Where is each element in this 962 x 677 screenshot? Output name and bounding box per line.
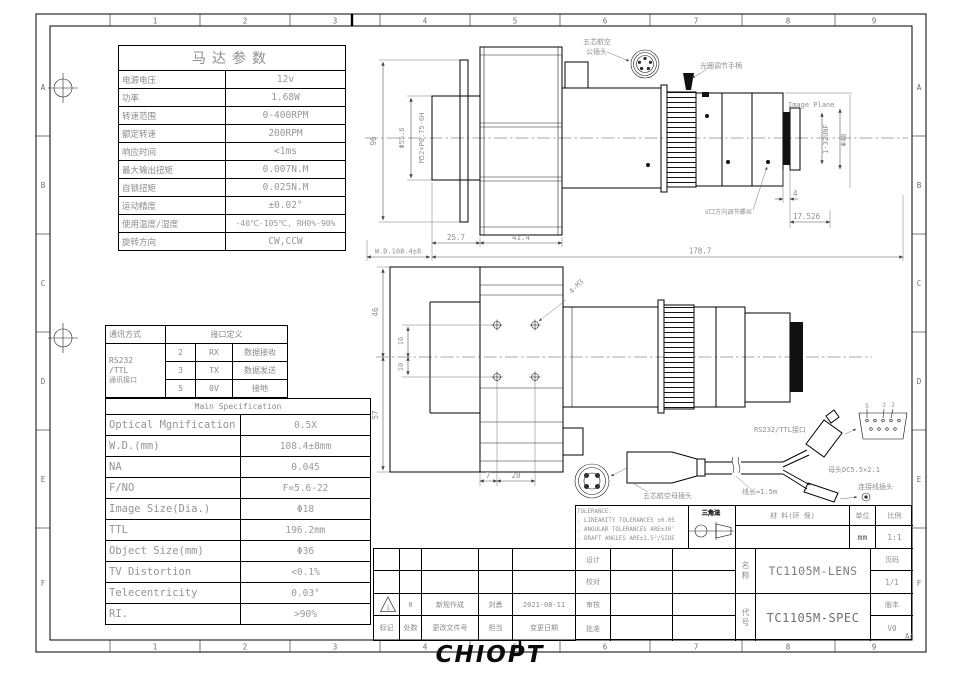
review-label: 审核 <box>576 594 611 616</box>
drawing-page: 1 2 3 4 5 6 7 8 9 1 2 3 4 5 6 7 8 9 A B … <box>0 0 962 677</box>
motor-row-value: -40℃-105℃, RH0%-90% <box>226 215 346 233</box>
table-row: 功率1.68W <box>119 89 346 107</box>
revision-header-mark: 标记 <box>374 616 400 641</box>
rs232-plug-body <box>806 420 842 457</box>
projection-symbol-cell <box>689 506 736 549</box>
table-row: 马达参数 <box>119 46 346 71</box>
table-row: NA0.045 <box>106 457 371 478</box>
revision-mark-cell <box>374 594 400 616</box>
focus-knurled-ring <box>667 92 696 187</box>
motor-row-value: CW,CCW <box>226 233 346 251</box>
label-cable-length: 线长≈1.5m <box>742 487 777 496</box>
motor-row-label: 最大输出扭矩 <box>119 161 226 179</box>
db9-connector <box>859 409 907 439</box>
zone-row-label: D <box>917 377 922 386</box>
table-row: TV Distortion<0.1% <box>106 562 371 583</box>
main-specification-table: Main Specification Optical Mgnification0… <box>105 398 371 625</box>
motor-row-label: 电源电压 <box>119 71 226 89</box>
proof-label: 校对 <box>576 571 611 594</box>
aviation-plug-block <box>565 62 588 88</box>
approve-value <box>611 616 673 641</box>
spec-row-label: TV Distortion <box>106 562 241 583</box>
revision-date: 2021-08-11 <box>513 594 576 616</box>
table-row: Optical Mgnification0.5X <box>106 415 371 436</box>
table-row: 最大输出扭矩0.007N.M <box>119 161 346 179</box>
spec-row-label: Optical Mgnification <box>106 415 241 436</box>
revision-header-count: 处数 <box>400 616 422 641</box>
zone-col-label: 9 <box>872 643 877 652</box>
zone-col-label: 7 <box>694 17 699 26</box>
revision-header-date: 变更日期 <box>513 616 576 641</box>
approve-label: 批准 <box>576 616 611 641</box>
table-row: 标记 处数 更改文件号 担当 变更日期 <box>374 616 576 641</box>
motor-row-value: 0.007N.M <box>226 161 346 179</box>
comm-pin: 2 <box>166 344 196 362</box>
revision-count: 0 <box>400 594 422 616</box>
scale-label: 比例 <box>876 506 913 526</box>
label-five-pin-male-plug-line2: 公插头 <box>586 47 607 56</box>
motor-parameter-table: 马达参数 电源电压12v 功率1.68W 转速范围0-400RPM 额定转速20… <box>118 45 346 251</box>
zone-col-label: 1 <box>153 17 158 26</box>
spec-row-value: <0.1% <box>241 562 371 583</box>
page-value: 1/1 <box>871 571 913 594</box>
db9-pin-5: 5 <box>865 403 869 410</box>
motor-row-label: 自锁扭矩 <box>119 179 226 197</box>
spec-row-label: F/NO <box>106 478 241 499</box>
table-row: 通讯方式 接口定义 <box>106 326 288 344</box>
table-row: F/NOF=5.6-22 <box>106 478 371 499</box>
revision-header-resp: 担当 <box>479 616 513 641</box>
db9-pin-2: 2 <box>891 402 895 409</box>
aperture-handle <box>683 73 694 90</box>
table-row: 使用温度/湿度-40℃-105℃, RH0%-90% <box>119 215 346 233</box>
aviation-plug-body <box>627 452 697 483</box>
motor-row-label: 转速范围 <box>119 107 226 125</box>
proof-date <box>673 571 736 594</box>
comm-method-line: /TTL <box>109 366 162 376</box>
spec-row-value: 0.5X <box>241 415 371 436</box>
zone-row-label: F <box>917 579 922 588</box>
zone-col-label: 5 <box>513 17 518 26</box>
zone-col-label: 6 <box>603 17 608 26</box>
material-label: 材 料(环 保) <box>736 506 850 526</box>
table-row: Main Specification <box>106 399 371 415</box>
table-row <box>374 571 576 594</box>
dim-4: 4 <box>793 189 798 198</box>
table-row: 0 新规作成 刘勇 2021-08-11 <box>374 594 576 616</box>
dim-46: 46 <box>371 307 380 317</box>
motor-row-value: 200RPM <box>226 125 346 143</box>
dim-1-32unf: 1-32UNF <box>822 124 830 154</box>
five-pin-connector-face <box>631 50 659 78</box>
motor-row-value: ±0.02° <box>226 197 346 215</box>
zone-row-label: C <box>41 279 46 288</box>
comm-pin: 5 <box>166 380 196 398</box>
tolerance-note: TOLERANCE: . LINEARITY TOLERANCES ±0.05 … <box>576 506 689 549</box>
comm-method-cell: RS232 /TTL 通讯接口 <box>106 344 166 398</box>
comm-method-header: 通讯方式 <box>106 326 166 344</box>
zone-row-label: C <box>917 279 922 288</box>
design-value <box>611 549 673 571</box>
table-row: 电源电压12v <box>119 71 346 89</box>
table-row: TTL196.2mm <box>106 520 371 541</box>
cable-assembly-drawing: RS232/TTL接口 5 3 2 母头DC5.5×2.1 连接线插头 五芯航空… <box>575 402 907 502</box>
part-name: TC1105M-LENS <box>756 549 871 594</box>
db9-pin-3: 3 <box>882 402 886 409</box>
revision-table: 0 新规作成 刘勇 2021-08-11 标记 处数 更改文件号 担当 变更日期 <box>373 548 576 641</box>
dim-7: 7 <box>486 471 491 480</box>
design-label: 设计 <box>576 549 611 571</box>
dim-96: 96 <box>369 136 378 146</box>
spec-row-label: Object Size(mm) <box>106 541 241 562</box>
top-view-drawing: 96 Φ55.6 M52×P0.75-6H 五芯航空 公插头 光圈调节手柄 <box>365 37 908 261</box>
motor-row-label: 运动精度 <box>119 197 226 215</box>
name-label: 名称 <box>736 549 756 594</box>
revision-header-doc: 更改文件号 <box>422 616 479 641</box>
spec-row-value: F=5.6-22 <box>241 478 371 499</box>
registration-mark <box>48 73 78 353</box>
table-row: 运动精度±0.02° <box>119 197 346 215</box>
motor-row-label: 额定转速 <box>119 125 226 143</box>
table-row <box>374 549 576 571</box>
zone-col-label: 3 <box>333 17 338 26</box>
dim-16: 16 <box>397 337 405 345</box>
comm-method-line: 通讯接口 <box>109 376 162 385</box>
spec-row-value: 0.045 <box>241 457 371 478</box>
dim-10: 10 <box>397 363 405 371</box>
comm-method-line: RS232 <box>109 356 162 366</box>
spec-row-value: Φ36 <box>241 541 371 562</box>
comm-pin: 3 <box>166 362 196 380</box>
table-row: W.D.(mm)108.4±8mm <box>106 436 371 457</box>
page-label: 页码 <box>871 549 913 571</box>
review-date <box>673 594 736 616</box>
comm-desc: 接地 <box>233 380 288 398</box>
zone-row-label: A <box>41 83 46 92</box>
comm-def-header: 接口定义 <box>166 326 288 344</box>
dim-20: 20 <box>511 471 521 480</box>
dc-plug-body <box>804 483 838 502</box>
zone-col-label: 7 <box>694 643 699 652</box>
scale-value: 1:1 <box>876 526 913 549</box>
connector-stub <box>563 428 583 455</box>
unit-label: 单位 <box>850 506 876 526</box>
table-row: 自锁扭矩0.025N.M <box>119 179 346 197</box>
label-cable-plug: 连接线插头 <box>858 482 893 491</box>
dim-25-7: 25.7 <box>447 233 465 242</box>
comm-signal: 0V <box>196 380 233 398</box>
comm-desc: 数据发送 <box>233 362 288 380</box>
dim-57: 57 <box>371 410 380 419</box>
zone-col-label: 2 <box>243 643 248 652</box>
zone-col-label: 8 <box>786 17 791 26</box>
label-five-pin-female: 五芯航空母插头 <box>643 491 692 500</box>
dim-17-526: 17.526 <box>793 212 821 221</box>
communication-table: 通讯方式 接口定义 RS232 /TTL 通讯接口 2 RX 数据接收 3 TX… <box>105 325 288 398</box>
table-row: Image Size(Dia.)Φ18 <box>106 499 371 520</box>
spec-row-value: 196.2mm <box>241 520 371 541</box>
label-4-m3: 4-M3 <box>568 278 586 296</box>
table-row: 转速范围0-400RPM <box>119 107 346 125</box>
zone-col-label: 1 <box>153 643 158 652</box>
label-v-port-screw: V口方向调节螺丝 <box>705 208 752 216</box>
code-label: 代号 <box>736 594 756 641</box>
spec-row-value: >90% <box>241 604 371 625</box>
motor-row-value: 1.68W <box>226 89 346 107</box>
table-row: Object Size(mm)Φ36 <box>106 541 371 562</box>
spec-row-label: Telecentricity <box>106 583 241 604</box>
label-dc-female: 母头DC5.5×2.1 <box>828 465 880 474</box>
zone-row-label: B <box>41 181 46 190</box>
proof-value <box>611 571 673 594</box>
spec-row-value: Φ18 <box>241 499 371 520</box>
dim-phi48: Φ48 <box>840 134 848 147</box>
dim-thread-m52: M52×P0.75-6H <box>418 113 426 164</box>
dim-41-4: 41.4 <box>512 233 531 242</box>
motor-row-value: 0-400RPM <box>226 107 346 125</box>
dc-jack-face <box>862 493 870 501</box>
approve-date <box>673 616 736 641</box>
zone-row-label: B <box>917 181 922 190</box>
dim-wd: W.D.108.4±8 <box>375 248 421 256</box>
comm-signal: TX <box>196 362 233 380</box>
motor-row-value: <1ms <box>226 143 346 161</box>
label-five-pin-male-plug-line1: 五芯航空 <box>583 37 611 46</box>
revision-desc: 新规作成 <box>422 594 479 616</box>
spec-row-label: TTL <box>106 520 241 541</box>
rear-mount-bar <box>790 322 803 392</box>
spec-row-label: W.D.(mm) <box>106 436 241 457</box>
motor-row-value: 12v <box>226 71 346 89</box>
spec-table-title: Main Specification <box>106 399 371 415</box>
dim-phi55-6: Φ55.6 <box>398 127 406 148</box>
motor-table-title: 马达参数 <box>119 46 346 71</box>
table-row: RI.>90% <box>106 604 371 625</box>
zone-col-label: 4 <box>423 17 428 26</box>
unit-value: mm <box>850 526 876 549</box>
version-label: 版本 <box>871 594 913 616</box>
label-rs232-ttl-port: RS232/TTL接口 <box>754 425 806 434</box>
comm-signal: RX <box>196 344 233 362</box>
table-row: 额定转速200RPM <box>119 125 346 143</box>
spec-row-label: NA <box>106 457 241 478</box>
spec-row-label: Image Size(Dia.) <box>106 499 241 520</box>
motor-row-value: 0.025N.M <box>226 179 346 197</box>
spec-row-value: 0.03° <box>241 583 371 604</box>
motor-row-label: 旋转方向 <box>119 233 226 251</box>
company-logo: CHIOPT <box>428 642 552 669</box>
zone-col-label: 9 <box>872 17 877 26</box>
zone-row-label: A <box>917 83 922 92</box>
zone-col-label: 2 <box>243 17 248 26</box>
image-plane-bar <box>783 112 790 165</box>
zone-col-label: 6 <box>603 643 608 652</box>
part-code: TC1105M-SPEC <box>756 594 871 641</box>
table-row: 旋转方向CW,CCW <box>119 233 346 251</box>
zone-col-label: 3 <box>333 643 338 652</box>
table-row: RS232 /TTL 通讯接口 2 RX 数据接收 <box>106 344 288 362</box>
mounting-holes <box>492 320 541 383</box>
comm-desc: 数据接收 <box>233 344 288 362</box>
zone-row-label: E <box>41 475 46 484</box>
focus-knurled-ring-bottom <box>664 305 694 409</box>
paper-size-label: A4 <box>905 632 914 641</box>
title-block: TOLERANCE: . LINEARITY TOLERANCES ±0.05 … <box>575 505 912 640</box>
design-date <box>673 549 736 571</box>
five-pin-female-face <box>575 464 609 498</box>
zone-col-label: 8 <box>786 643 791 652</box>
material-value <box>736 526 850 549</box>
dim-178-7: 178.7 <box>689 247 712 256</box>
spec-row-value: 108.4±8mm <box>241 436 371 457</box>
label-aperture-handle: 光圈调节手柄 <box>700 61 742 70</box>
zone-row-label: D <box>41 377 46 386</box>
zone-row-label: E <box>917 475 922 484</box>
table-row: Telecentricity0.03° <box>106 583 371 604</box>
spec-row-label: RI. <box>106 604 241 625</box>
zone-row-label: F <box>41 579 46 588</box>
zone-col-label: 4 <box>423 643 428 652</box>
motor-row-label: 响应时间 <box>119 143 226 161</box>
motor-row-label: 功率 <box>119 89 226 107</box>
review-value <box>611 594 673 616</box>
table-row: 响应时间<1ms <box>119 143 346 161</box>
revision-by: 刘勇 <box>479 594 513 616</box>
motor-row-label: 使用温度/湿度 <box>119 215 226 233</box>
bottom-view-drawing: 4-M3 46 57 16 10 7 20 <box>371 267 872 486</box>
